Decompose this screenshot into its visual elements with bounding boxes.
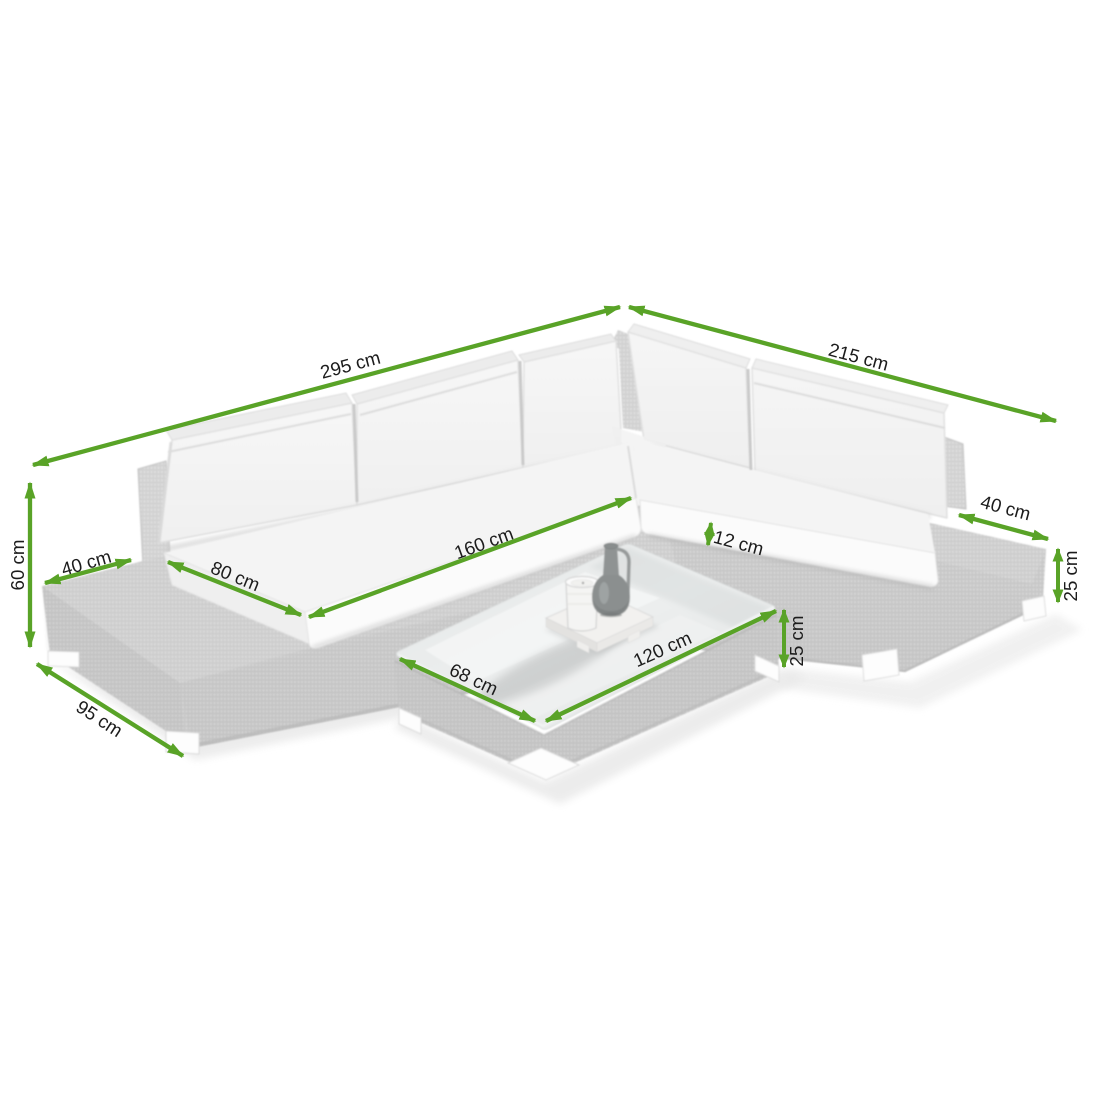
svg-text:25 cm: 25 cm <box>1060 551 1081 602</box>
svg-text:25 cm: 25 cm <box>786 616 807 667</box>
svg-text:60 cm: 60 cm <box>7 540 28 591</box>
